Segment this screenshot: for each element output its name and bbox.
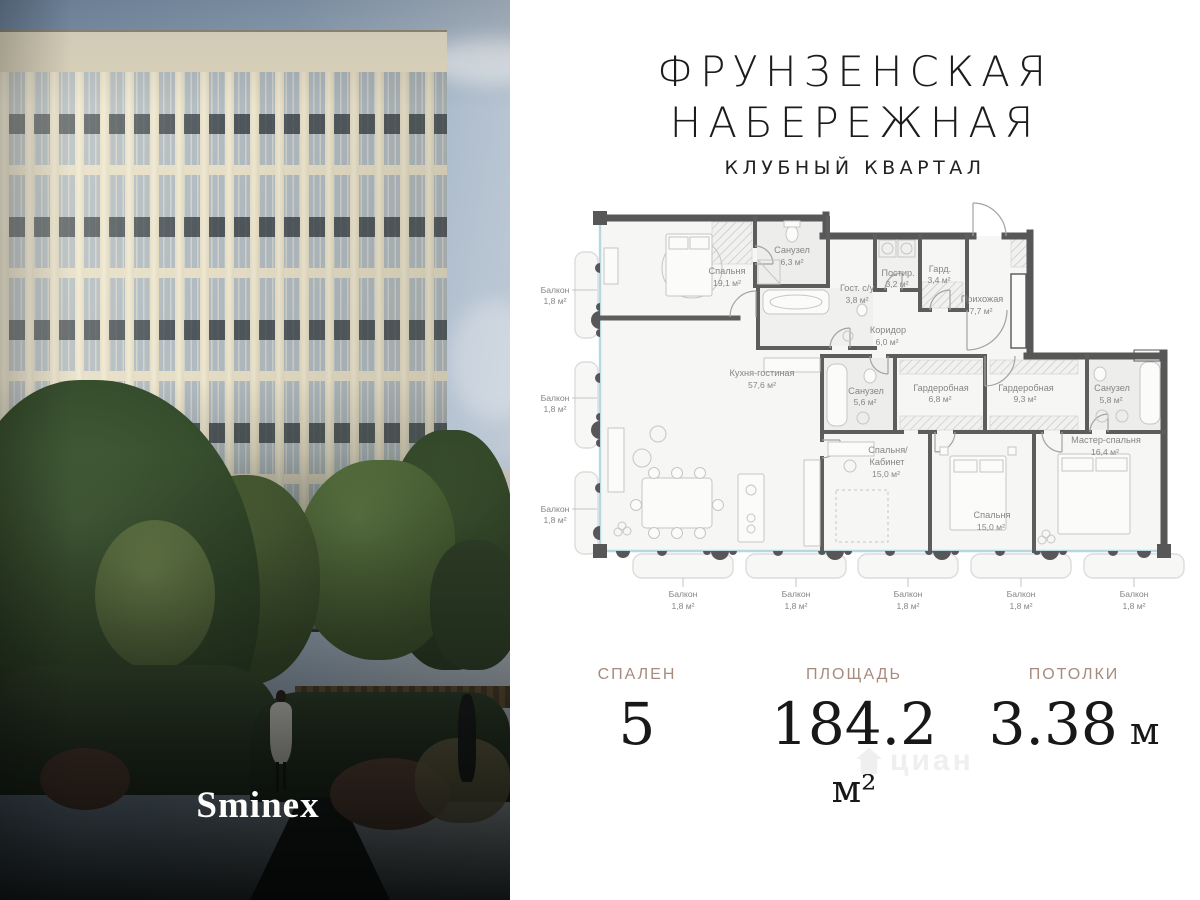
svg-text:57,6 м²: 57,6 м² bbox=[748, 380, 776, 390]
svg-text:3,8 м²: 3,8 м² bbox=[845, 295, 868, 305]
svg-text:1,8 м²: 1,8 м² bbox=[671, 601, 694, 611]
room-label-bath1: Санузел bbox=[774, 245, 810, 255]
room-label-bedroom1: Спальня bbox=[709, 266, 746, 276]
room-label-corridor: Коридор bbox=[870, 325, 906, 335]
svg-text:9,3 м²: 9,3 м² bbox=[1013, 394, 1036, 404]
balcony-label: Балкон bbox=[669, 589, 698, 599]
svg-text:6,0 м²: 6,0 м² bbox=[875, 337, 898, 347]
svg-text:1,8 м²: 1,8 м² bbox=[543, 515, 566, 525]
room-label-wardrobe1: Гардеробная bbox=[913, 383, 969, 393]
room-label-hallway: Прихожая bbox=[961, 294, 1004, 304]
svg-text:1,8 м²: 1,8 м² bbox=[896, 601, 919, 611]
stat-ceilings: ПОТОЛКИ 3.38 м bbox=[964, 666, 1184, 753]
site-watermark: циан bbox=[856, 744, 1096, 778]
balcony-label: Балкон bbox=[782, 589, 811, 599]
stat-bedrooms: СПАЛЕН 5 bbox=[527, 666, 747, 753]
svg-text:15,0 м²: 15,0 м² bbox=[977, 522, 1005, 532]
svg-text:1,8 м²: 1,8 м² bbox=[543, 404, 566, 414]
room-label-bath2: Санузел bbox=[848, 386, 884, 396]
svg-text:5,8 м²: 5,8 м² bbox=[1099, 395, 1122, 405]
svg-text:16,4 м²: 16,4 м² bbox=[1091, 447, 1119, 457]
listing-card: Sminex ФРУНЗЕНСКАЯ НАБЕРЕЖНАЯ КЛУБНЫЙ КВ… bbox=[0, 0, 1200, 900]
room-label-kitchen: Кухня-гостиная bbox=[730, 368, 795, 378]
project-subtitle: КЛУБНЫЙ КВАРТАЛ bbox=[510, 157, 1200, 179]
room-label-bedroom-office: Спальня/ bbox=[868, 445, 908, 455]
room-label-bedroom2: Спальня bbox=[974, 510, 1011, 520]
project-title-line1: ФРУНЗЕНСКАЯ bbox=[510, 46, 1200, 97]
balcony-label: Балкон bbox=[1120, 589, 1149, 599]
balcony-label: Балкон bbox=[541, 285, 570, 295]
svg-text:1,8 м²: 1,8 м² bbox=[1009, 601, 1032, 611]
stat-bedrooms-value: 5 bbox=[527, 695, 747, 753]
project-title-block: ФРУНЗЕНСКАЯ НАБЕРЕЖНАЯ КЛУБНЫЙ КВАРТАЛ bbox=[510, 46, 1200, 179]
balcony-label: Балкон bbox=[541, 393, 570, 403]
photo-vignette bbox=[0, 0, 510, 900]
room-label-master-bedroom: Мастер-спальня bbox=[1071, 435, 1141, 445]
stat-area-label: ПЛОЩАДЬ bbox=[744, 666, 964, 684]
project-title-line2: НАБЕРЕЖНАЯ bbox=[510, 97, 1200, 148]
svg-text:5,6 м²: 5,6 м² bbox=[853, 397, 876, 407]
svg-text:3,2 м²: 3,2 м² bbox=[885, 279, 908, 289]
building-photo: Sminex bbox=[0, 0, 510, 900]
house-icon bbox=[856, 748, 882, 774]
svg-text:1,8 м²: 1,8 м² bbox=[784, 601, 807, 611]
svg-text:1,8 м²: 1,8 м² bbox=[1122, 601, 1145, 611]
stat-bedrooms-label: СПАЛЕН bbox=[527, 666, 747, 684]
svg-text:19,1 м²: 19,1 м² bbox=[713, 278, 741, 288]
svg-text:3,4 м²: 3,4 м² bbox=[927, 275, 950, 285]
room-label-laundry: Постир. bbox=[881, 268, 914, 278]
svg-text:6,3 м²: 6,3 м² bbox=[780, 257, 803, 267]
stat-area: ПЛОЩАДЬ 184.2 м² bbox=[744, 666, 964, 811]
svg-text:15,0 м²: 15,0 м² bbox=[872, 469, 900, 479]
svg-text:1,8 м²: 1,8 м² bbox=[543, 296, 566, 306]
room-label-guest-wc: Гост. с/у bbox=[840, 283, 875, 293]
room-label-wardrobe2: Гардеробная bbox=[998, 383, 1054, 393]
room-label-bath3: Санузел bbox=[1094, 383, 1130, 393]
svg-text:7,7 м²: 7,7 м² bbox=[969, 306, 992, 316]
balcony-label: Балкон bbox=[541, 504, 570, 514]
balcony-label: Балкон bbox=[1007, 589, 1036, 599]
vent-shaft bbox=[1011, 274, 1026, 348]
room-label-closet: Гард. bbox=[929, 264, 951, 274]
developer-logo: Sminex bbox=[178, 784, 338, 827]
balcony-label: Балкон bbox=[894, 589, 923, 599]
svg-text:Кабинет: Кабинет bbox=[870, 457, 906, 467]
svg-text:6,8 м²: 6,8 м² bbox=[928, 394, 951, 404]
floorplan: Спальня 19,1 м² Санузел 6,3 м² Гост. с/у… bbox=[530, 190, 1200, 640]
stat-ceilings-label: ПОТОЛКИ bbox=[964, 666, 1184, 684]
